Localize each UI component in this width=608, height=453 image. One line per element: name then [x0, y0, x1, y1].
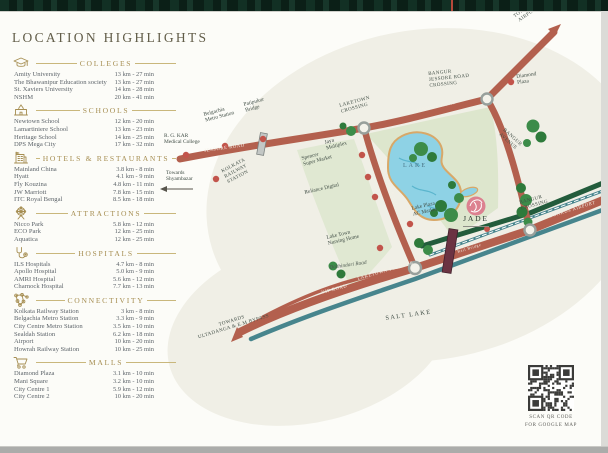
- place-name: St. Xaviers University: [14, 86, 73, 94]
- list-item: Aquatica12 km - 25 min: [14, 236, 154, 244]
- place-name: Mainland China: [14, 166, 57, 174]
- distance-value: 4.8 km - 11 min: [113, 181, 154, 189]
- place-name: ITC Royal Bengal: [14, 196, 62, 204]
- distance-value: 13 km - 27 min: [115, 79, 154, 87]
- distance-value: 8.5 km - 18 min: [113, 196, 154, 204]
- distance-value: 13 km - 23 min: [115, 126, 154, 134]
- list-item: Newtown School12 km - 20 min: [14, 118, 154, 126]
- jade-logo-text: JADE: [459, 214, 493, 223]
- list-item: Charnock Hospital7.7 km - 13 min: [14, 283, 154, 291]
- section-header: ATTRACTIONS: [36, 209, 176, 218]
- cart-icon: [13, 355, 29, 369]
- section-header: HOSPITALS: [36, 249, 176, 258]
- place-name: Diamond Plaza: [14, 370, 54, 378]
- place-name: Airport: [14, 338, 33, 346]
- distance-value: 10 km - 25 min: [115, 346, 154, 354]
- network-icon: [13, 293, 29, 307]
- list-item: Diamond Plaza3.1 km - 10 min: [14, 370, 154, 378]
- place-name: NSHM: [14, 94, 33, 102]
- bottom-edge-strip: [0, 446, 608, 453]
- stethoscope-icon: [13, 246, 29, 260]
- distance-value: 5.8 km - 12 min: [113, 221, 154, 229]
- list-item: NSHM20 km - 41 min: [14, 94, 154, 102]
- ferris-wheel-icon: [13, 206, 29, 220]
- section-header: COLLEGES: [36, 59, 176, 68]
- section-attractions: ATTRACTIONSNicco Park5.8 km - 12 minECO …: [12, 209, 180, 244]
- place-name: ILS Hospitals: [14, 261, 50, 269]
- distance-value: 5.9 km - 12 min: [113, 386, 154, 394]
- place-name: Aquatica: [14, 236, 38, 244]
- section-malls: MALLSDiamond Plaza3.1 km - 10 minMani Sq…: [12, 358, 180, 400]
- top-foliage-band: [0, 0, 608, 12]
- distance-value: 7.7 km - 13 min: [113, 283, 154, 291]
- place-name: Apollo Hospital: [14, 268, 56, 276]
- list-item: Belgachia Metro Station3.3 km - 9 min: [14, 315, 154, 323]
- list-item: Hyatt4.1 km - 9 min: [14, 173, 154, 181]
- place-name: Sealdah Station: [14, 331, 55, 339]
- list-item: Fly Kouzina4.8 km - 11 min: [14, 181, 154, 189]
- brochure-page: R. G. KAR Medical College Towards Shyamb…: [0, 0, 608, 453]
- place-name: City Centre Metro Station: [14, 323, 83, 331]
- list-item: City Centre 15.9 km - 12 min: [14, 386, 154, 394]
- distance-value: 5.0 km - 9 min: [116, 268, 154, 276]
- distance-value: 7.8 km - 15 min: [113, 189, 154, 197]
- distance-value: 12 km - 25 min: [115, 236, 154, 244]
- distance-value: 3.2 km - 10 min: [113, 378, 154, 386]
- place-name: Kolkata Railway Station: [14, 308, 79, 316]
- list-item: Mani Square3.2 km - 10 min: [14, 378, 154, 386]
- list-item: AMRI Hospital5.6 km - 12 min: [14, 276, 154, 284]
- distance-value: 17 km - 32 min: [115, 141, 154, 149]
- section-title: MALLS: [89, 358, 123, 367]
- section-hospitals: HOSPITALSILS Hospitals4.7 km - 8 minApol…: [12, 249, 180, 291]
- distance-value: 3.5 km - 10 min: [113, 323, 154, 331]
- place-name: City Centre 1: [14, 386, 50, 394]
- section-header: MALLS: [36, 358, 176, 367]
- distance-value: 3.3 km - 9 min: [116, 315, 154, 323]
- distance-value: 12 km - 25 min: [115, 228, 154, 236]
- list-item: Airport10 km - 20 min: [14, 338, 154, 346]
- section-header: CONNECTIVITY: [36, 296, 176, 305]
- section-title: HOTELS & RESTAURANTS: [43, 154, 170, 163]
- section-schools: SCHOOLSNewtown School12 km - 20 minLamar…: [12, 106, 180, 148]
- list-item: Kolkata Railway Station3 km - 8 min: [14, 308, 154, 316]
- list-item: ITC Royal Bengal8.5 km - 18 min: [14, 196, 154, 204]
- section-rows: Newtown School12 km - 20 minLamartiniere…: [14, 118, 154, 148]
- place-name: Charnock Hospital: [14, 283, 64, 291]
- section-rows: Nicco Park5.8 km - 12 minECO Park12 km -…: [14, 221, 154, 244]
- place-name: Lamartiniere School: [14, 126, 68, 134]
- qr-code: [528, 365, 574, 411]
- place-name: AMRI Hospital: [14, 276, 55, 284]
- section-title: SCHOOLS: [83, 106, 130, 115]
- section-rows: Diamond Plaza3.1 km - 10 minMani Square3…: [14, 370, 154, 400]
- place-name: Hyatt: [14, 173, 29, 181]
- place-name: The Bhawanipur Education society: [14, 79, 107, 87]
- place-name: City Centre 2: [14, 393, 50, 401]
- list-item: Mainland China3.8 km - 8 min: [14, 166, 154, 174]
- section-hotels: HOTELS & RESTAURANTSMainland China3.8 km…: [12, 154, 180, 204]
- list-item: Heritage School14 km - 25 min: [14, 134, 154, 142]
- place-name: Howrah Railway Station: [14, 346, 79, 354]
- distance-value: 12 km - 20 min: [115, 118, 154, 126]
- list-item: City Centre Metro Station3.5 km - 10 min: [14, 323, 154, 331]
- distance-value: 3.1 km - 10 min: [113, 370, 154, 378]
- place-name: JW Marriott: [14, 189, 46, 197]
- list-item: Sealdah Station6.2 km - 18 min: [14, 331, 154, 339]
- section-rows: ILS Hospitals4.7 km - 8 minApollo Hospit…: [14, 261, 154, 291]
- list-item: JW Marriott7.8 km - 15 min: [14, 189, 154, 197]
- place-name: Newtown School: [14, 118, 60, 126]
- list-item: St. Xaviers University14 km - 28 min: [14, 86, 154, 94]
- sidebar-sections: COLLEGESAmity University13 km - 27 minTh…: [12, 59, 180, 401]
- section-connectivity: CONNECTIVITYKolkata Railway Station3 km …: [12, 296, 180, 354]
- list-item: City Centre 210 km - 20 min: [14, 393, 154, 401]
- section-title: CONNECTIVITY: [68, 296, 145, 305]
- highlights-panel: LOCATION HIGHLIGHTS COLLEGESAmity Univer…: [12, 30, 180, 406]
- place-name: DPS Mega City: [14, 141, 56, 149]
- hotel-icon: [13, 151, 29, 165]
- distance-value: 6.2 km - 18 min: [113, 331, 154, 339]
- list-item: Amity University13 km - 27 min: [14, 71, 154, 79]
- distance-value: 14 km - 28 min: [115, 86, 154, 94]
- qr-caption: SCAN QR CODE FOR GOOGLE MAP: [514, 414, 588, 429]
- section-title: HOSPITALS: [78, 249, 134, 258]
- graduation-cap-icon: [13, 56, 29, 70]
- jade-logo-tagline: [463, 226, 489, 227]
- section-rows: Mainland China3.8 km - 8 minHyatt4.1 km …: [14, 166, 154, 204]
- distance-value: 13 km - 27 min: [115, 71, 154, 79]
- distance-value: 4.1 km - 9 min: [116, 173, 154, 181]
- list-item: ILS Hospitals4.7 km - 8 min: [14, 261, 154, 269]
- place-name: Heritage School: [14, 134, 57, 142]
- list-item: The Bhawanipur Education society13 km - …: [14, 79, 154, 87]
- place-name: Mani Square: [14, 378, 48, 386]
- list-item: Apollo Hospital5.0 km - 9 min: [14, 268, 154, 276]
- distance-value: 10 km - 20 min: [115, 393, 154, 401]
- distance-value: 20 km - 41 min: [115, 94, 154, 102]
- list-item: Lamartiniere School13 km - 23 min: [14, 126, 154, 134]
- section-header: SCHOOLS: [36, 106, 176, 115]
- right-edge-strip: [601, 11, 608, 447]
- place-name: Belgachia Metro Station: [14, 315, 78, 323]
- distance-value: 14 km - 25 min: [115, 134, 154, 142]
- map-label-lake: LAKE: [403, 163, 427, 169]
- school-icon: [13, 103, 29, 117]
- list-item: DPS Mega City17 km - 32 min: [14, 141, 154, 149]
- distance-value: 10 km - 20 min: [115, 338, 154, 346]
- section-title: COLLEGES: [80, 59, 132, 68]
- list-item: Howrah Railway Station10 km - 25 min: [14, 346, 154, 354]
- distance-value: 3.8 km - 8 min: [116, 166, 154, 174]
- place-name: Fly Kouzina: [14, 181, 47, 189]
- jade-rose-icon: [467, 197, 486, 216]
- section-header: HOTELS & RESTAURANTS: [36, 154, 176, 163]
- list-item: ECO Park12 km - 25 min: [14, 228, 154, 236]
- page-title: LOCATION HIGHLIGHTS: [12, 30, 180, 46]
- place-name: ECO Park: [14, 228, 41, 236]
- place-name: Amity University: [14, 71, 60, 79]
- red-tick-mark: [451, 0, 453, 11]
- section-rows: Amity University13 km - 27 minThe Bhawan…: [14, 71, 154, 101]
- list-item: Nicco Park5.8 km - 12 min: [14, 221, 154, 229]
- distance-value: 3 km - 8 min: [121, 308, 154, 316]
- section-title: ATTRACTIONS: [71, 209, 142, 218]
- distance-value: 4.7 km - 8 min: [116, 261, 154, 269]
- section-colleges: COLLEGESAmity University13 km - 27 minTh…: [12, 59, 180, 101]
- place-name: Nicco Park: [14, 221, 43, 229]
- section-rows: Kolkata Railway Station3 km - 8 minBelga…: [14, 308, 154, 354]
- distance-value: 5.6 km - 12 min: [113, 276, 154, 284]
